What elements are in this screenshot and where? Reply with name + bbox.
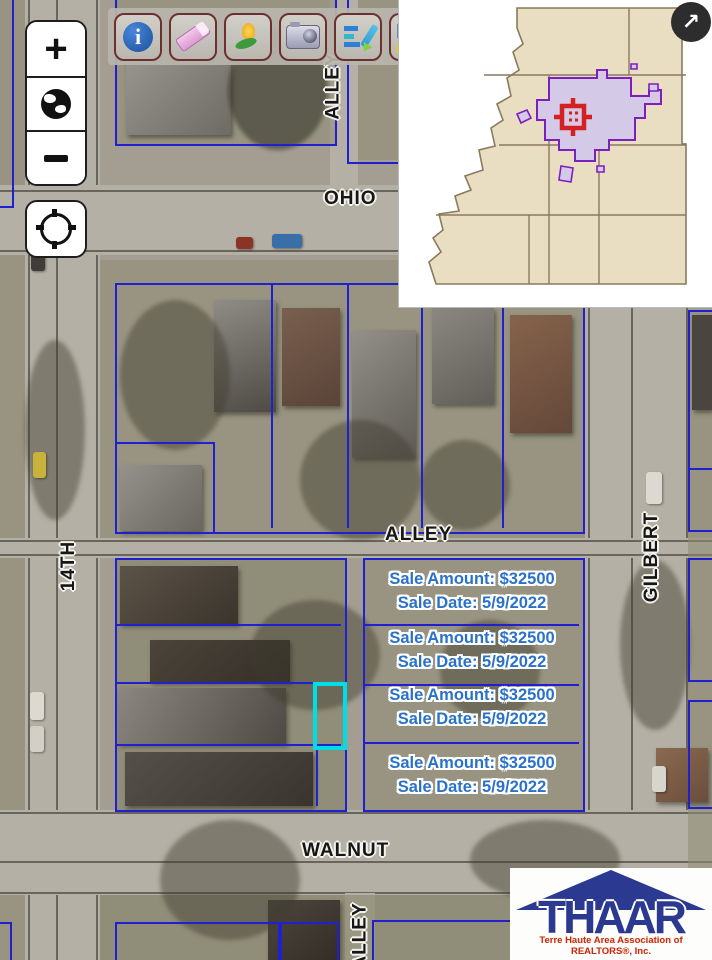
parcel-line bbox=[421, 285, 423, 528]
tree bbox=[25, 340, 85, 520]
logo-tagline: Terre Haute Area Association of REALTORS… bbox=[510, 935, 712, 957]
sale-amount: Sale Amount: $32500 bbox=[366, 752, 578, 776]
globe-icon bbox=[41, 89, 71, 119]
sale-date: Sale Date: 5/9/2022 bbox=[366, 776, 578, 800]
locate-control bbox=[25, 200, 87, 258]
flower-marker-icon bbox=[233, 22, 263, 52]
car bbox=[652, 766, 666, 792]
parcel[interactable] bbox=[688, 310, 712, 470]
arrow-up-right-icon: ↗ bbox=[682, 9, 700, 35]
overview-map bbox=[399, 0, 712, 307]
plus-icon: + bbox=[44, 29, 67, 69]
chart-edit-icon bbox=[343, 22, 373, 52]
eraser-icon bbox=[175, 21, 211, 53]
sale-label: Sale Amount: $32500 Sale Date: 5/9/2022 bbox=[366, 568, 578, 616]
street-label-alley-mid: ALLEY bbox=[385, 524, 452, 546]
parcel[interactable] bbox=[688, 700, 712, 809]
locate-button[interactable] bbox=[27, 202, 85, 256]
road-line bbox=[0, 540, 712, 542]
parcel[interactable] bbox=[0, 0, 14, 208]
sale-label: Sale Amount: $32500 Sale Date: 5/9/2022 bbox=[366, 684, 578, 732]
highlighted-parcel[interactable] bbox=[313, 682, 347, 750]
info-icon: i bbox=[123, 22, 153, 52]
sale-label: Sale Amount: $32500 Sale Date: 5/9/2022 bbox=[366, 752, 578, 800]
sale-amount: Sale Amount: $32500 bbox=[366, 568, 578, 592]
eraser-tool-button[interactable] bbox=[169, 13, 217, 61]
car bbox=[236, 237, 253, 249]
street-label-ohio: OHIO bbox=[324, 188, 377, 210]
street-label-14th: 14TH bbox=[58, 541, 80, 591]
map-toolbar: i K bbox=[108, 8, 400, 65]
parcel-line bbox=[365, 624, 579, 626]
map-viewport[interactable]: ALLEY OHIO 14TH ALLEY GILBERT WALNUT ALL… bbox=[0, 0, 712, 960]
parcel[interactable] bbox=[278, 922, 339, 960]
parcel-line bbox=[271, 285, 273, 528]
sale-date: Sale Date: 5/9/2022 bbox=[366, 708, 578, 732]
photo-tool-button[interactable] bbox=[279, 13, 327, 61]
sale-label: Sale Amount: $32500 Sale Date: 5/9/2022 bbox=[366, 627, 578, 675]
expand-overview-button[interactable]: ↗ bbox=[671, 2, 711, 42]
parcel[interactable] bbox=[688, 558, 712, 682]
info-tool-button[interactable]: i bbox=[114, 13, 162, 61]
parcel[interactable] bbox=[115, 442, 215, 534]
zoom-in-button[interactable]: + bbox=[27, 22, 85, 76]
thaar-logo: THAAR Terre Haute Area Association of RE… bbox=[510, 868, 712, 960]
parcel-line bbox=[117, 682, 341, 684]
street-label-walnut: WALNUT bbox=[302, 840, 389, 862]
street-label-gilbert: GILBERT bbox=[641, 512, 663, 602]
parcel[interactable] bbox=[0, 922, 12, 960]
car bbox=[30, 726, 44, 752]
road-line bbox=[0, 554, 712, 556]
camera-icon bbox=[286, 25, 320, 49]
crosshair-locate-icon bbox=[40, 213, 72, 245]
logo-brand-text: THAAR bbox=[510, 894, 712, 940]
overview-map-panel[interactable]: ↗ bbox=[398, 0, 712, 308]
car bbox=[33, 452, 46, 478]
parcel-line bbox=[117, 744, 341, 746]
zoom-out-button[interactable] bbox=[27, 130, 85, 184]
parcel-line bbox=[502, 285, 504, 528]
sale-date: Sale Date: 5/9/2022 bbox=[366, 651, 578, 675]
parcel-line bbox=[117, 624, 341, 626]
minus-icon bbox=[44, 155, 68, 162]
sale-date: Sale Date: 5/9/2022 bbox=[366, 592, 578, 616]
car bbox=[272, 234, 302, 248]
parcel[interactable] bbox=[688, 468, 712, 532]
parcel-line bbox=[365, 742, 579, 744]
street-label-alley-bottom: ALLEY bbox=[350, 902, 372, 960]
sale-amount: Sale Amount: $32500 bbox=[366, 684, 578, 708]
chart-edit-tool-button[interactable] bbox=[334, 13, 382, 61]
zoom-control-stack: + bbox=[25, 20, 87, 186]
car bbox=[30, 692, 44, 720]
parcel[interactable] bbox=[115, 922, 282, 960]
sale-amount: Sale Amount: $32500 bbox=[366, 627, 578, 651]
road-line bbox=[0, 812, 712, 814]
parcel-line bbox=[347, 285, 349, 528]
home-extent-button[interactable] bbox=[27, 76, 85, 130]
parcel-line bbox=[316, 746, 318, 806]
car bbox=[646, 472, 662, 504]
marker-tool-button[interactable] bbox=[224, 13, 272, 61]
